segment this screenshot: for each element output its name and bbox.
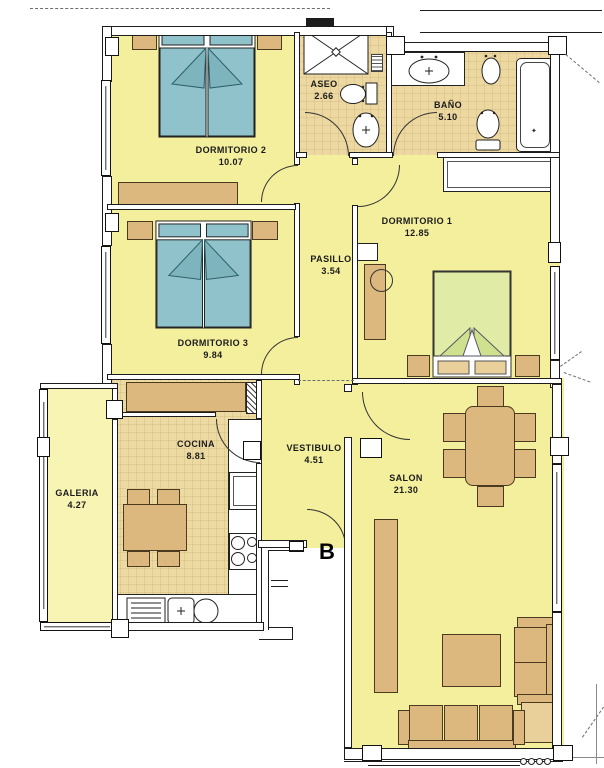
wall bbox=[344, 437, 352, 748]
room-label-vestibulo: VESTIBULO 4.51 bbox=[286, 443, 341, 466]
pillar bbox=[37, 437, 50, 457]
room-label-cocina: COCINA 8.81 bbox=[177, 439, 215, 462]
projection-dash bbox=[298, 380, 354, 381]
room-label-aseo: ASEO 2.66 bbox=[310, 79, 337, 102]
room-label-dormitorio-3: DORMITORIO 3 9.84 bbox=[178, 338, 249, 361]
wall bbox=[294, 32, 300, 165]
chair bbox=[477, 386, 504, 407]
unit-letter: B bbox=[319, 541, 335, 563]
bidet-icon bbox=[480, 52, 502, 86]
chair bbox=[443, 449, 466, 478]
toilet-icon bbox=[338, 82, 380, 106]
stair-mark bbox=[271, 586, 288, 587]
twin-beds bbox=[158, 28, 256, 138]
wall bbox=[352, 205, 358, 385]
chair bbox=[157, 551, 180, 567]
window bbox=[39, 389, 48, 622]
toilet-icon bbox=[474, 108, 502, 153]
projection-dash bbox=[560, 351, 582, 367]
pillar bbox=[386, 36, 405, 55]
wardrobe bbox=[118, 182, 238, 206]
room-area: 3.54 bbox=[310, 266, 351, 278]
window bbox=[552, 464, 562, 612]
chair bbox=[443, 413, 466, 442]
floor-plan-canvas: ✦ bbox=[0, 0, 604, 768]
dining-table bbox=[465, 406, 515, 486]
room-area: 5.10 bbox=[434, 112, 462, 124]
pillar bbox=[243, 441, 261, 460]
drain-mark: ✦ bbox=[531, 128, 537, 135]
balcony-post bbox=[536, 758, 543, 765]
room-name: GALERIA bbox=[55, 488, 98, 500]
double-bed bbox=[432, 270, 512, 378]
pillar bbox=[111, 619, 129, 638]
balcony-line bbox=[368, 765, 520, 766]
landing-line bbox=[268, 627, 293, 628]
window bbox=[101, 80, 111, 176]
twin-beds bbox=[154, 220, 253, 329]
sofa-cushion bbox=[479, 705, 513, 741]
room-label-dormitorio-1: DORMITORIO 1 12.85 bbox=[382, 216, 453, 239]
nightstand bbox=[515, 355, 540, 377]
room-name: BAÑO bbox=[434, 100, 462, 112]
pillar bbox=[553, 745, 573, 761]
room-label-galeria: GALERIA 4.27 bbox=[55, 488, 98, 511]
wall bbox=[102, 176, 112, 246]
sideboard bbox=[374, 519, 398, 693]
pillar bbox=[548, 242, 561, 263]
wall bbox=[550, 152, 560, 244]
room-name: DORMITORIO 2 bbox=[196, 145, 267, 157]
room-name: SALON bbox=[389, 473, 423, 485]
wall-shelf bbox=[357, 243, 378, 261]
wall bbox=[107, 374, 300, 380]
wall bbox=[296, 152, 307, 158]
chair bbox=[127, 551, 150, 567]
projection-dash bbox=[564, 372, 591, 383]
stool bbox=[370, 269, 393, 292]
room-area: 2.66 bbox=[310, 91, 337, 103]
section-mark-top bbox=[306, 18, 334, 26]
room-area: 10.07 bbox=[196, 157, 267, 169]
wall bbox=[107, 204, 296, 210]
window bbox=[550, 266, 560, 360]
landing-line bbox=[259, 639, 293, 640]
bathtub-icon bbox=[516, 58, 554, 152]
wall bbox=[352, 378, 562, 384]
sofa-armrest bbox=[513, 710, 525, 745]
wall bbox=[344, 384, 352, 392]
balcony-post bbox=[528, 758, 535, 765]
wall bbox=[40, 383, 118, 389]
wall bbox=[112, 419, 118, 625]
stair-mark bbox=[271, 580, 288, 581]
balcony-post bbox=[520, 758, 527, 765]
sink-icon bbox=[406, 53, 452, 85]
chair bbox=[477, 486, 504, 507]
sofa-cushion bbox=[409, 705, 443, 741]
pillar bbox=[105, 37, 119, 56]
wall bbox=[386, 42, 566, 52]
towel-radiator bbox=[371, 54, 383, 72]
pillar bbox=[548, 36, 567, 55]
nightstand bbox=[252, 221, 278, 240]
landing-line bbox=[268, 550, 303, 551]
pillar bbox=[105, 213, 119, 232]
kitchen-table bbox=[123, 504, 187, 551]
chair bbox=[513, 413, 536, 442]
chair bbox=[513, 449, 536, 478]
pillar bbox=[550, 437, 569, 456]
neighbor-line-top-2 bbox=[420, 32, 602, 33]
pillar bbox=[106, 400, 123, 419]
room-label-pasillo: PASILLO 3.54 bbox=[310, 254, 351, 277]
loveseat-cushions bbox=[514, 627, 547, 697]
door-stop-pillar bbox=[360, 438, 382, 458]
scan-line-right bbox=[596, 684, 597, 764]
chair bbox=[127, 489, 150, 505]
sink-icon bbox=[351, 111, 381, 149]
balcony-post bbox=[544, 758, 551, 765]
sofa-cushion bbox=[444, 705, 478, 741]
window bbox=[40, 622, 114, 631]
built-in-wardrobe bbox=[443, 157, 557, 192]
wall bbox=[552, 612, 562, 748]
neighbor-line-top-1 bbox=[420, 10, 602, 11]
room-name: ASEO bbox=[310, 79, 337, 91]
wall bbox=[110, 622, 264, 631]
room-name: PASILLO bbox=[310, 254, 351, 266]
wall bbox=[550, 42, 560, 154]
wall bbox=[294, 203, 300, 337]
pillar bbox=[362, 745, 382, 761]
wall bbox=[112, 412, 216, 417]
room-area: 12.85 bbox=[382, 228, 453, 240]
projection-dash bbox=[582, 703, 604, 738]
room-area: 4.27 bbox=[55, 500, 98, 512]
room-label-salon: SALON 21.30 bbox=[389, 473, 423, 496]
coffee-table bbox=[442, 634, 501, 687]
projection-dash bbox=[565, 54, 599, 83]
wall bbox=[256, 380, 262, 419]
wall bbox=[102, 26, 394, 36]
nightstand bbox=[127, 221, 153, 240]
wall bbox=[437, 152, 560, 158]
site-line-top bbox=[30, 8, 330, 9]
room-label-dormitorio-2: DORMITORIO 2 10.07 bbox=[196, 145, 267, 168]
wall bbox=[102, 344, 112, 388]
room-area: 21.30 bbox=[389, 485, 423, 497]
room-area: 4.51 bbox=[286, 455, 341, 467]
room-name: DORMITORIO 1 bbox=[382, 216, 453, 228]
nightstand bbox=[407, 355, 430, 377]
room-area: 8.81 bbox=[177, 451, 215, 463]
wall bbox=[352, 158, 358, 165]
room-name: COCINA bbox=[177, 439, 215, 451]
room-name: VESTIBULO bbox=[286, 443, 341, 455]
kitchen-wardrobe bbox=[126, 382, 246, 412]
room-label-bano: BAÑO 5.10 bbox=[434, 100, 462, 123]
chair bbox=[157, 489, 180, 505]
room-area: 9.84 bbox=[178, 350, 249, 362]
window bbox=[101, 246, 111, 344]
landing-line bbox=[268, 550, 269, 630]
room-name: DORMITORIO 3 bbox=[178, 338, 249, 350]
